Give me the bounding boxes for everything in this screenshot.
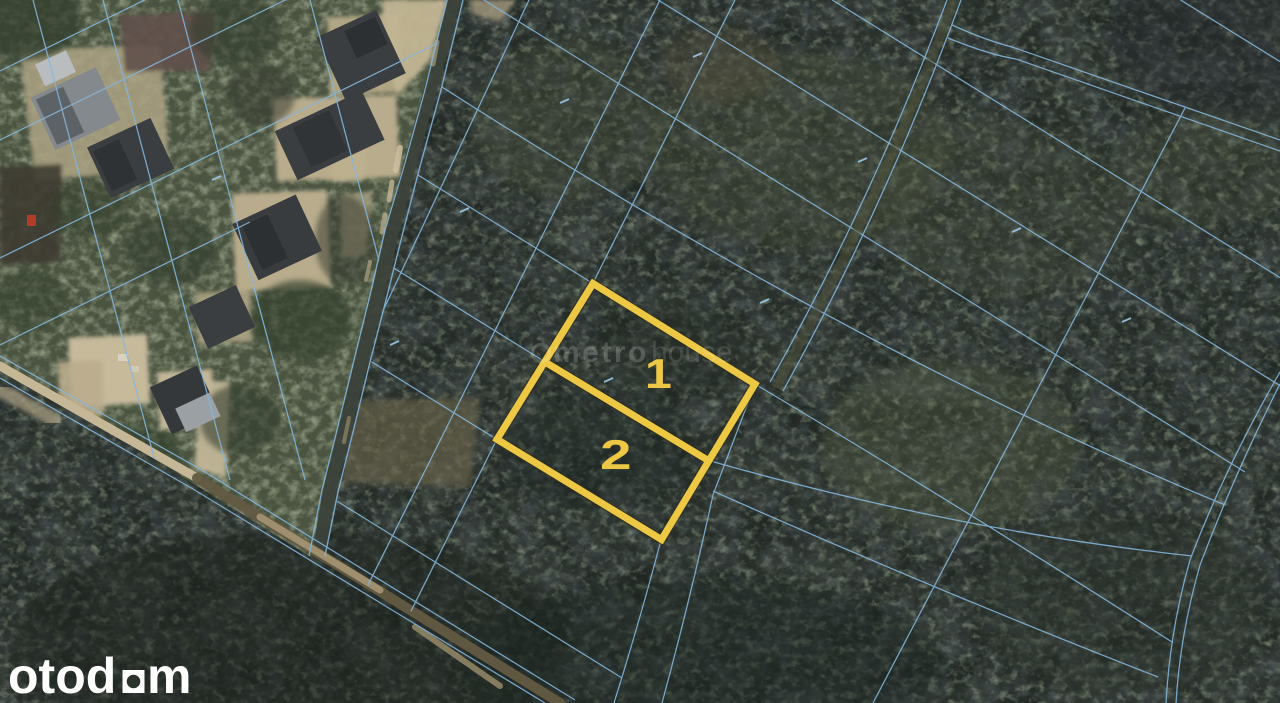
svg-text:metro: metro: [553, 336, 649, 369]
svg-text:m: m: [147, 648, 191, 703]
svg-text:otod: otod: [8, 648, 116, 703]
svg-text:2: 2: [600, 431, 632, 478]
svg-text:house: house: [651, 336, 733, 369]
